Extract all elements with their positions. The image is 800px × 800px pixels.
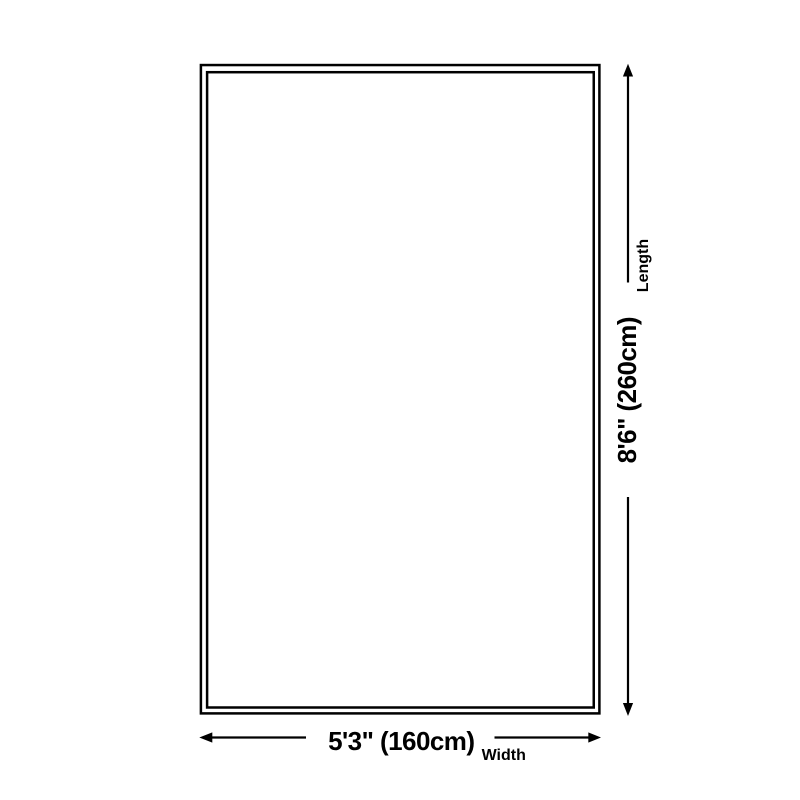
svg-text:Width: Width <box>482 747 526 764</box>
svg-text:Length: Length <box>635 239 652 292</box>
svg-text:5'3" (160cm): 5'3" (160cm) <box>328 726 474 756</box>
svg-text:8'6" (260cm): 8'6" (260cm) <box>612 317 642 463</box>
